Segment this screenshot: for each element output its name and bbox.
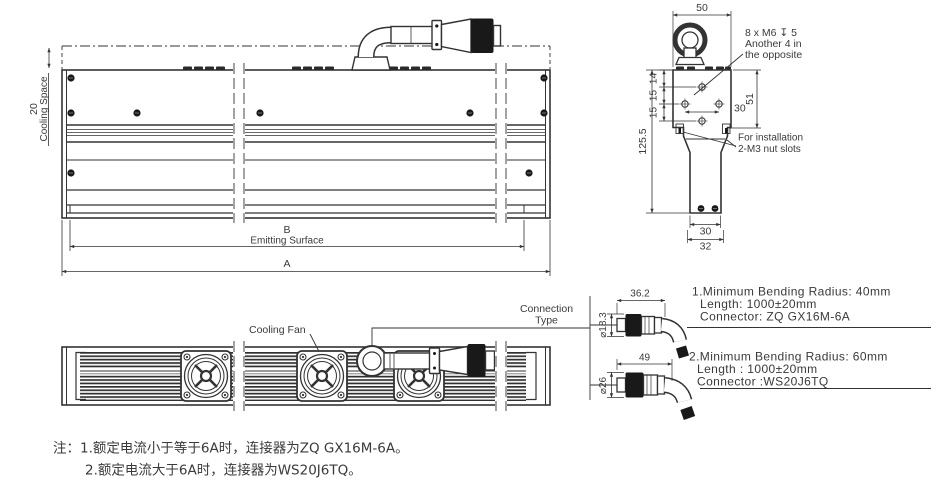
- side-width-dim: 50: [696, 2, 708, 14]
- drawing-canvas: 20 Cooling Space: [0, 0, 936, 484]
- connector-ring: [471, 19, 494, 54]
- bottom-view-drawing: Cooling Fan Connection Type: [62, 296, 617, 412]
- install-note-line1: For installation: [738, 133, 803, 144]
- install-note-line2: 2-M3 nut slots: [738, 144, 801, 155]
- connector-1-diameter-dim: ⌀18.3: [598, 312, 609, 338]
- notes-block: 注：1.额定电流小于等于6A时，连接器为ZQ GX16M-6A。 2.额定电流大…: [53, 440, 409, 479]
- cooling-fan-label: Cooling Fan: [249, 324, 306, 336]
- pitch-dim-15b: 15: [649, 107, 660, 119]
- emitting-surface-label: Emitting Surface: [250, 236, 324, 247]
- connector-2-spec-line3: Connector :WS20J6TQ: [697, 375, 829, 389]
- thread-note-line3: the opposite: [745, 49, 802, 61]
- connection-type-label-line1: Connection: [520, 303, 573, 315]
- connector-2-length-dim: 49: [639, 353, 651, 364]
- top-edge-pads: [183, 67, 431, 71]
- connector-2-diameter-dim: ⌀26: [598, 376, 609, 394]
- side-view-drawing: 50: [637, 2, 803, 253]
- top-cable-connector-drawing: [352, 19, 501, 71]
- overall-height-dim: 125.5: [637, 128, 649, 154]
- side-bottom-dimensions: 30 32: [688, 216, 724, 253]
- front-dimensions: B Emitting Surface A: [62, 220, 550, 276]
- note-line-2: 2.额定电流大于6A时，连接器为WS20J6TQ。: [85, 462, 362, 479]
- light-body-front: [62, 70, 550, 218]
- connector-1-spec-line3: Connector: ZQ GX16M-6A: [700, 310, 850, 324]
- emitting-dim-letter: B: [283, 224, 290, 236]
- connector-option-2-drawing: 49 ⌀26 2.Minimum Bending Radius: 60mm Le…: [598, 350, 931, 419]
- front-view-drawing: 20 Cooling Space: [28, 19, 550, 277]
- section-height-dim: 51: [744, 93, 756, 105]
- technical-drawing-page: 20 Cooling Space: [0, 0, 936, 484]
- connector-option-1-drawing: 36.2 ⌀18.3 1.Minimum Bending Radius: 40m…: [598, 285, 931, 358]
- bottom-inner-width-dim: 30: [700, 226, 712, 238]
- bottom-outer-width-dim: 32: [700, 241, 712, 253]
- cable-eyelet-drawing: [675, 25, 705, 65]
- cooling-fan-2-drawing: [297, 351, 347, 401]
- connection-type-label-line2: Type: [535, 315, 558, 327]
- connector-1-length-dim: 36.2: [630, 289, 650, 300]
- overall-dim-letter: A: [283, 258, 290, 270]
- note-line-1: 注：1.额定电流小于等于6A时，连接器为ZQ GX16M-6A。: [53, 440, 409, 457]
- cooling-fan-1-drawing: [181, 351, 231, 401]
- pitch-dim-15a: 15: [649, 90, 660, 102]
- pitch-dim-14: 14: [649, 73, 660, 85]
